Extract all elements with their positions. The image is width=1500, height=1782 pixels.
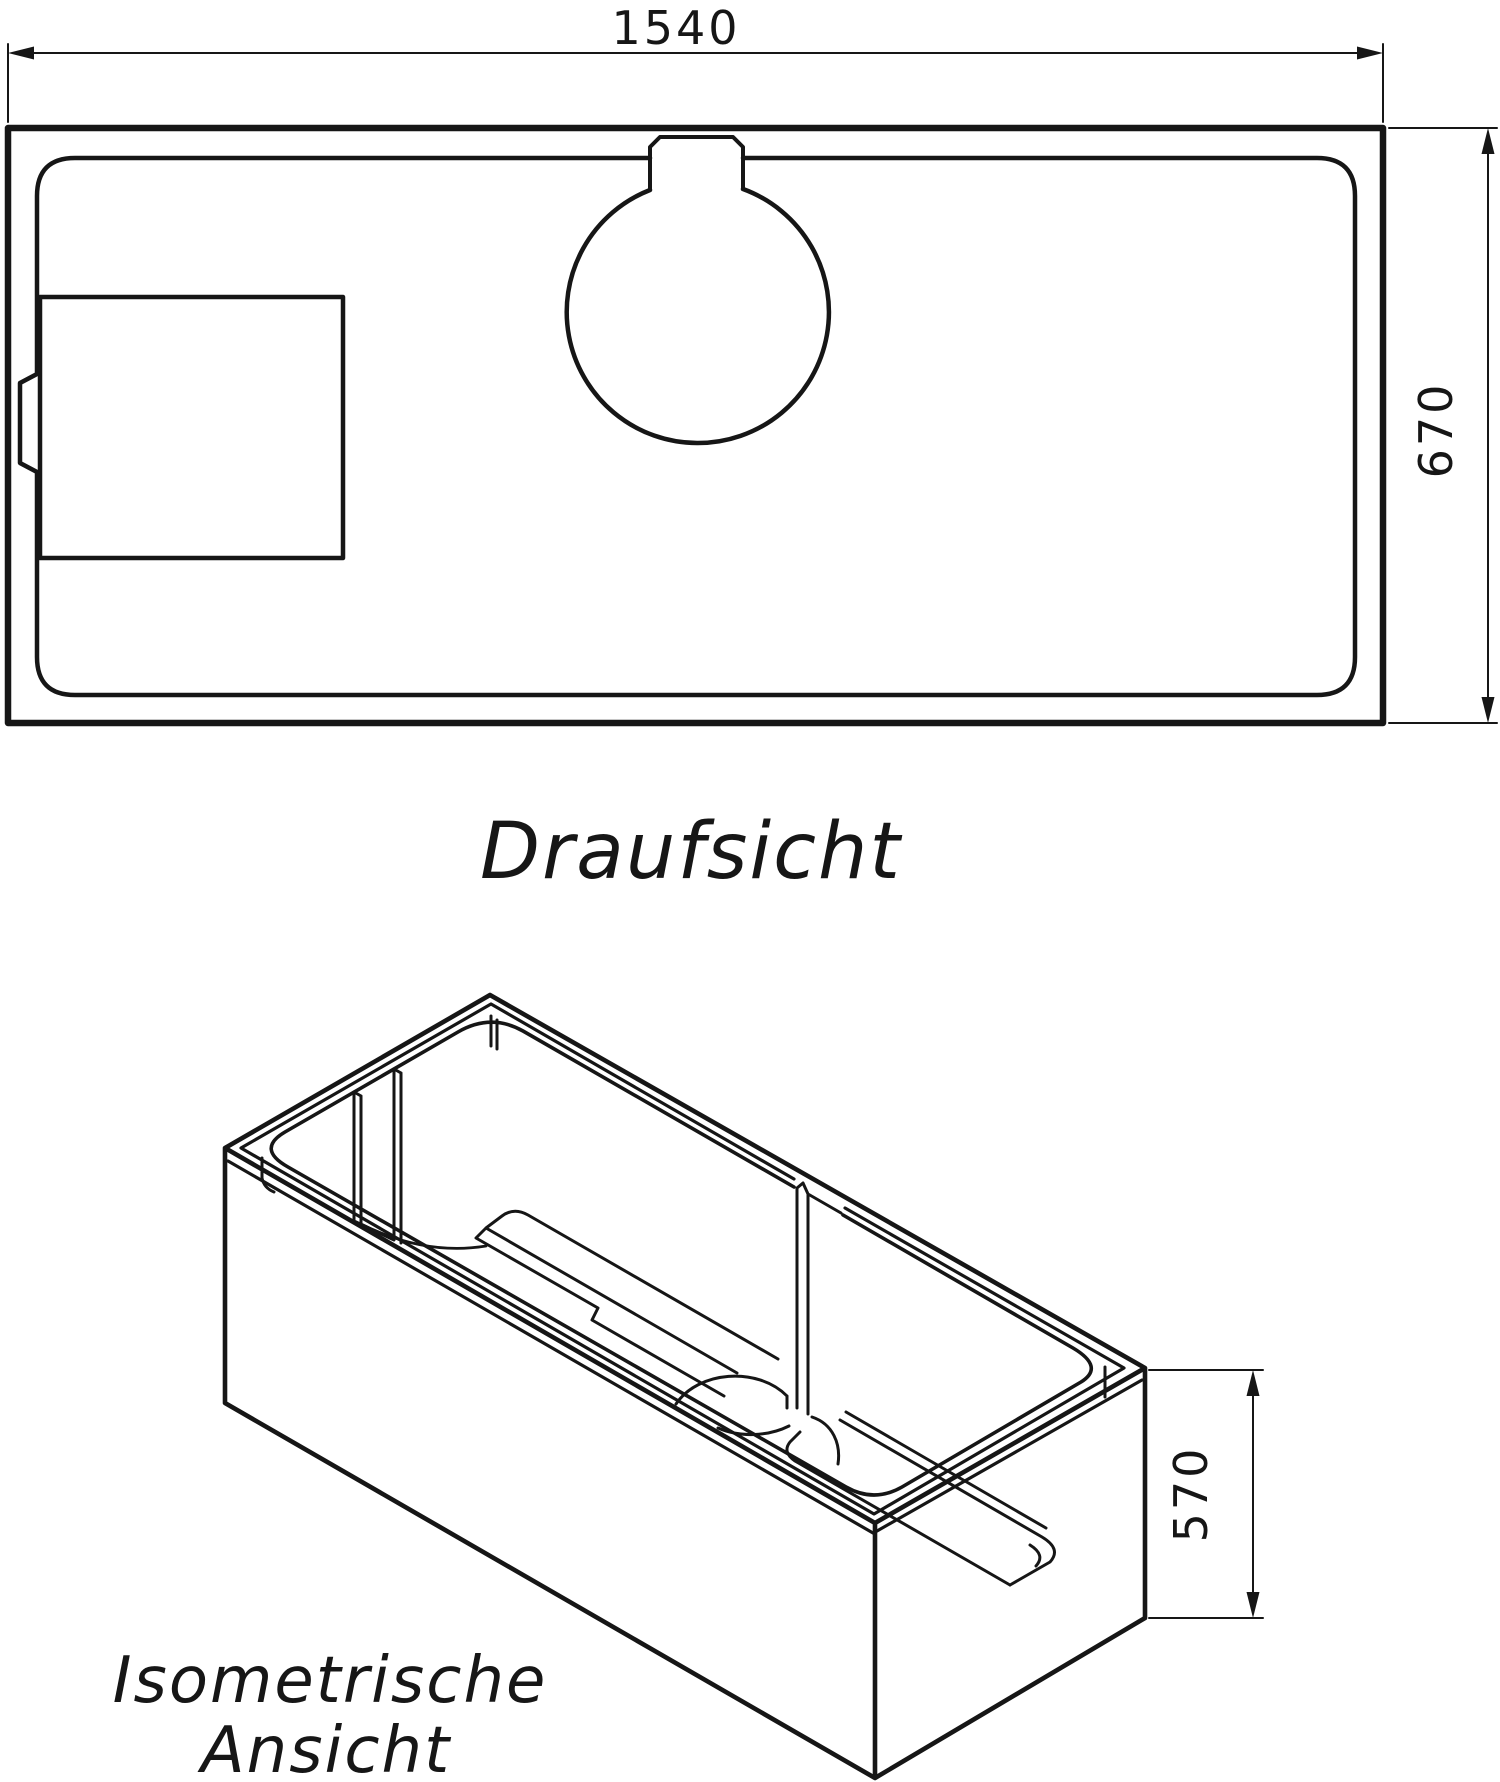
iso-view-title-line1: Isometrische bbox=[113, 1644, 548, 1718]
top-view-outer-frame bbox=[8, 128, 1383, 723]
iso-rim-chamfer bbox=[228, 1161, 1142, 1533]
iso-bench bbox=[476, 1211, 778, 1396]
top-view-title: Draufsicht bbox=[480, 807, 902, 897]
dim-arrow-down bbox=[1247, 1592, 1260, 1618]
technical-drawing-page: 1540 670 Draufsicht bbox=[0, 0, 1500, 1782]
dim-width-value: 1540 bbox=[611, 1, 740, 55]
dim-arrow-down bbox=[1482, 697, 1495, 723]
top-view-support-rectangle bbox=[40, 297, 343, 558]
top-view-tub-opening bbox=[20, 158, 1355, 695]
top-view-drawing: 1540 670 Draufsicht bbox=[8, 1, 1497, 897]
iso-partition-column bbox=[797, 1183, 841, 1414]
dim-arrow-right bbox=[1357, 47, 1383, 60]
dim-height-value: 670 bbox=[1409, 382, 1463, 479]
drain-circle-cutout bbox=[567, 189, 829, 443]
iso-view-title-line2: Ansicht bbox=[197, 1714, 452, 1782]
dim-width-1540 bbox=[8, 44, 1383, 122]
dim-arrow-up bbox=[1247, 1370, 1260, 1396]
isometric-view-drawing: 570 Isometrische Ansicht bbox=[113, 995, 1263, 1782]
overflow-tab-cutout bbox=[650, 137, 743, 190]
iso-dim-height-value: 570 bbox=[1164, 1446, 1218, 1543]
dim-arrow-left bbox=[8, 47, 34, 60]
dim-arrow-up bbox=[1482, 128, 1495, 154]
bathtub-carrier-drawing: 1540 670 Draufsicht bbox=[0, 0, 1500, 1782]
